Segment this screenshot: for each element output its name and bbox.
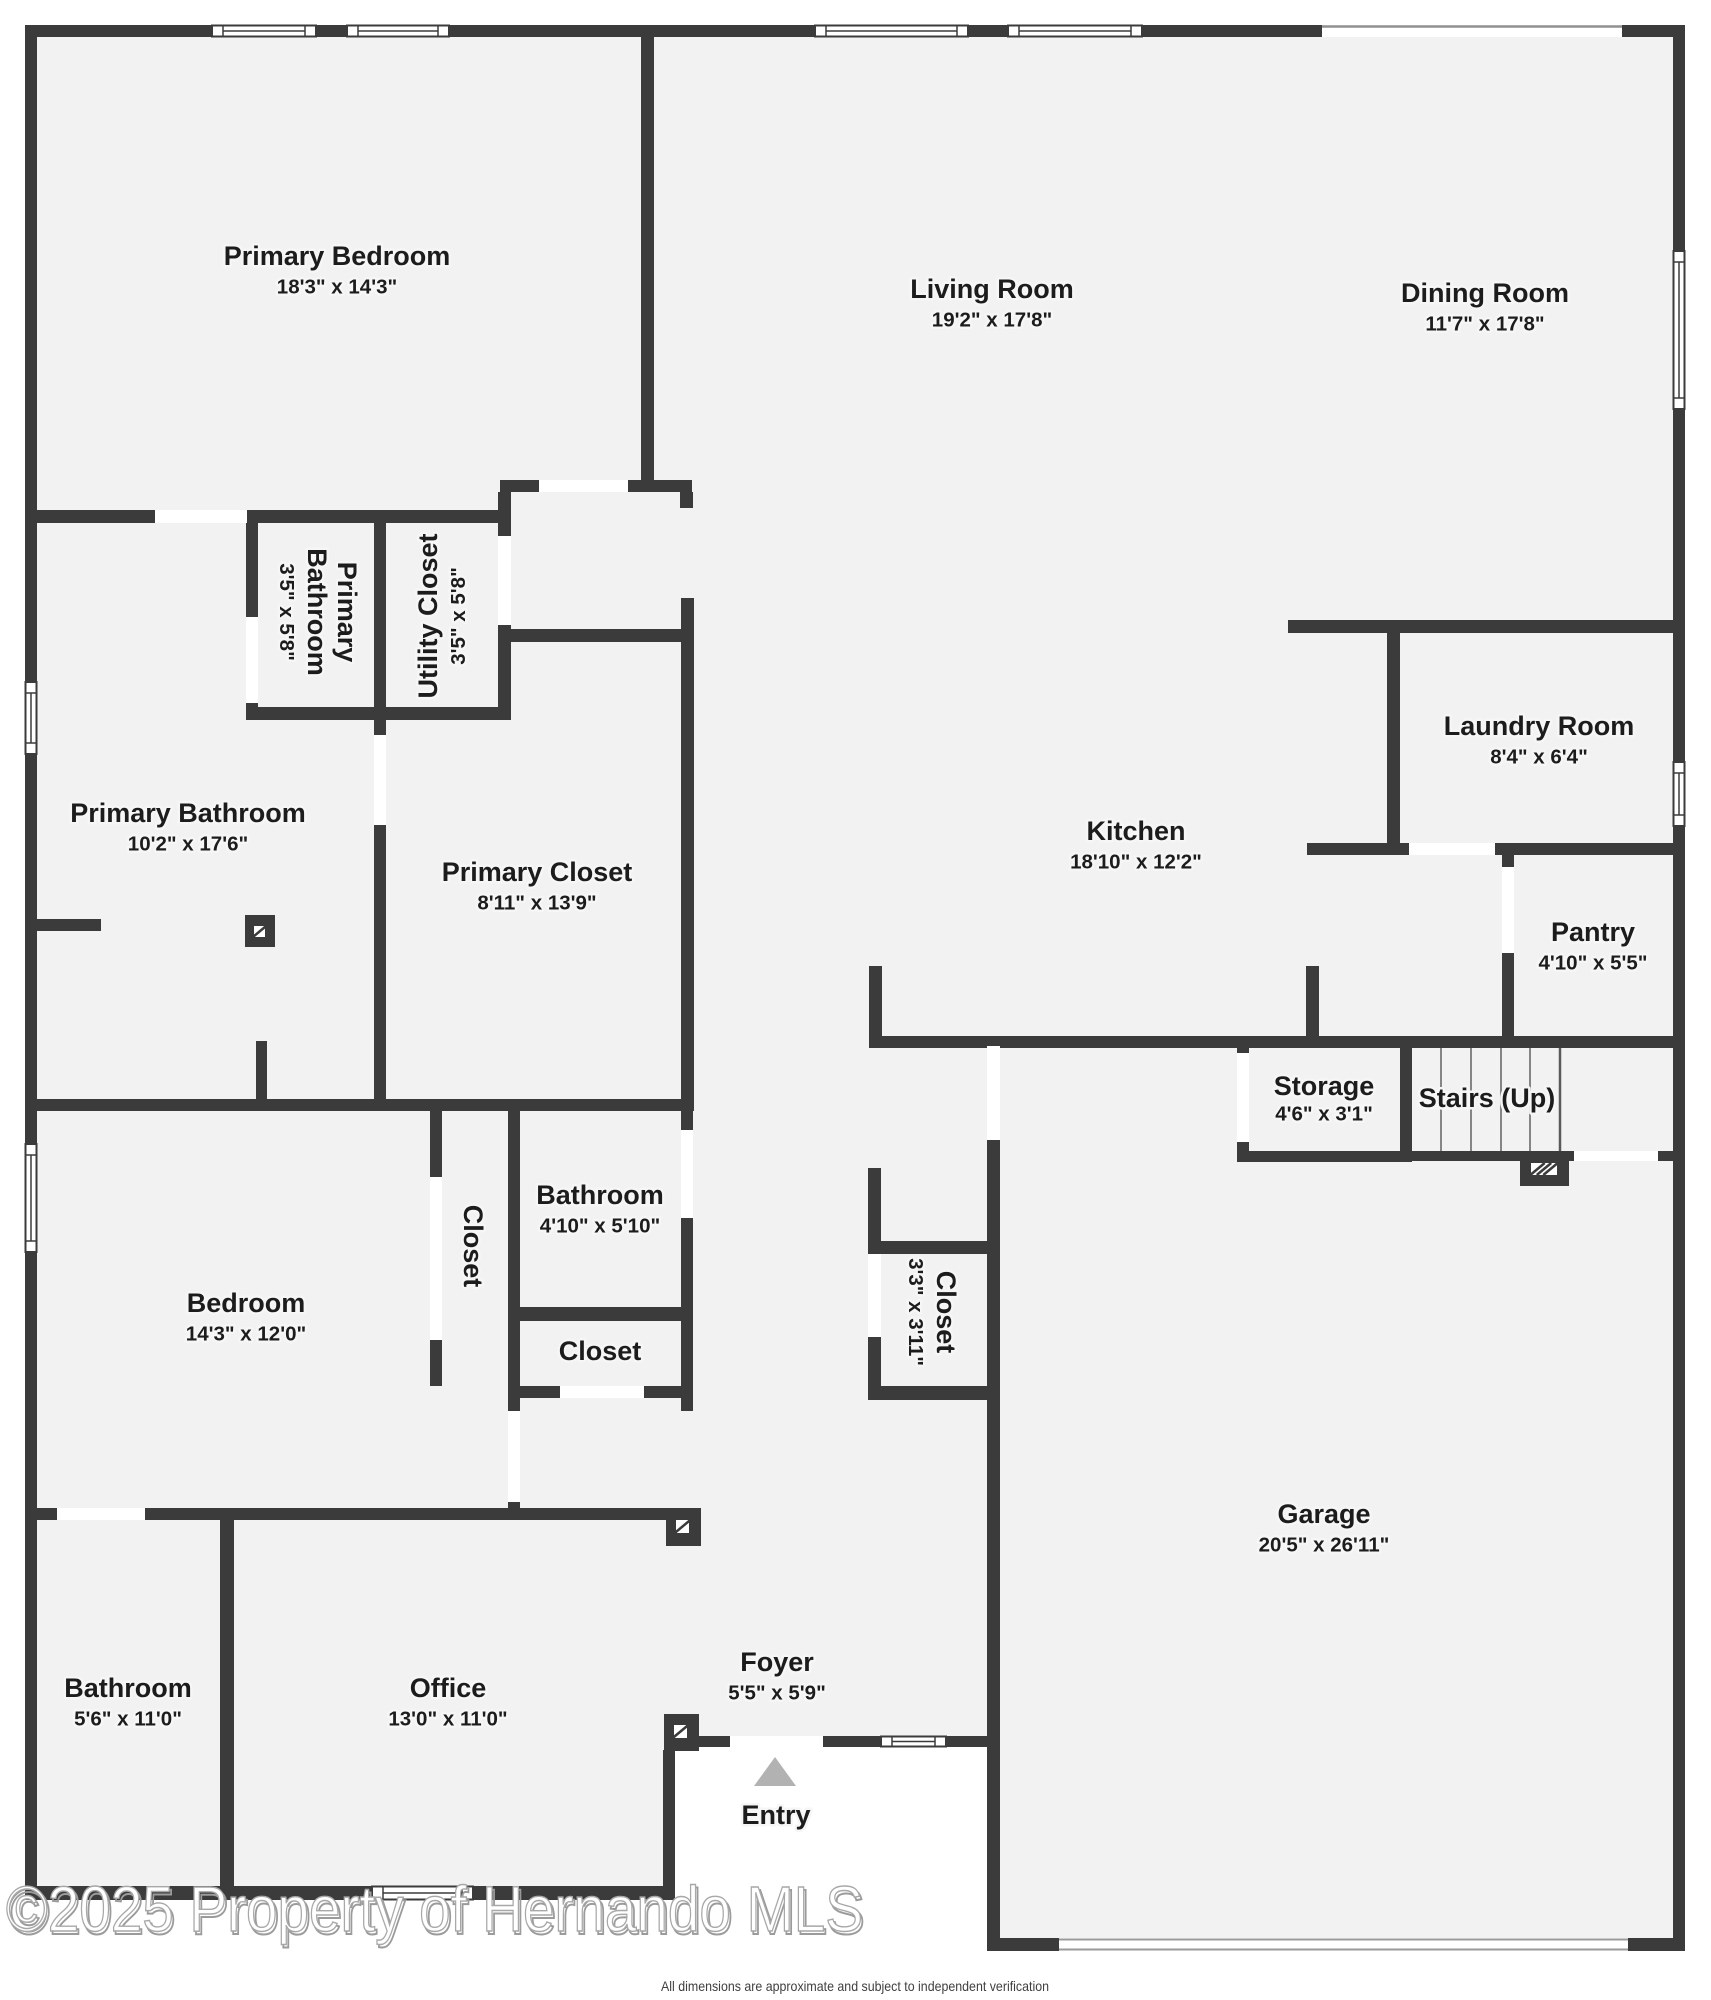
svg-text:8'4" x 6'4": 8'4" x 6'4" — [1490, 746, 1588, 769]
svg-text:Laundry Room: Laundry Room — [1444, 711, 1635, 741]
svg-text:Storage: Storage — [1274, 1071, 1375, 1101]
svg-text:10'2" x 17'6": 10'2" x 17'6" — [128, 833, 248, 856]
svg-text:Foyer: Foyer — [740, 1647, 814, 1677]
svg-text:3'5" x 5'8": 3'5" x 5'8" — [447, 567, 470, 665]
svg-text:20'5" x 26'11": 20'5" x 26'11" — [1259, 1534, 1390, 1557]
svg-text:Living Room: Living Room — [910, 274, 1074, 304]
svg-text:Utility Closet: Utility Closet — [413, 533, 443, 698]
svg-text:Stairs (Up): Stairs (Up) — [1419, 1083, 1556, 1113]
svg-text:3'3" x 3'11": 3'3" x 3'11" — [904, 1258, 927, 1366]
svg-text:5'5" x 5'9": 5'5" x 5'9" — [728, 1682, 826, 1705]
svg-text:Pantry: Pantry — [1551, 917, 1635, 947]
svg-text:Bedroom: Bedroom — [187, 1288, 306, 1318]
svg-text:3'5" x 5'8": 3'5" x 5'8" — [275, 563, 298, 661]
svg-text:13'0" x 11'0": 13'0" x 11'0" — [388, 1708, 507, 1731]
svg-text:Office: Office — [410, 1673, 487, 1703]
svg-text:All dimensions are approximate: All dimensions are approximate and subje… — [661, 1978, 1049, 1994]
svg-text:Entry: Entry — [741, 1800, 810, 1830]
svg-text:Primary Bedroom: Primary Bedroom — [224, 241, 451, 271]
svg-text:19'2" x 17'8": 19'2" x 17'8" — [932, 309, 1052, 332]
svg-text:4'10" x 5'5": 4'10" x 5'5" — [1539, 952, 1648, 975]
svg-text:Dining Room: Dining Room — [1401, 278, 1569, 308]
svg-text:Closet: Closet — [931, 1271, 961, 1354]
svg-text:18'3" x 14'3": 18'3" x 14'3" — [277, 276, 397, 299]
svg-text:4'6" x 3'1": 4'6" x 3'1" — [1275, 1103, 1373, 1126]
svg-text:8'11" x 13'9": 8'11" x 13'9" — [477, 892, 596, 915]
svg-text:Primary: Primary — [332, 562, 362, 663]
svg-text:Closet: Closet — [559, 1336, 642, 1366]
svg-text:Primary Closet: Primary Closet — [442, 857, 633, 887]
svg-text:11'7" x 17'8": 11'7" x 17'8" — [1425, 313, 1544, 336]
svg-text:18'10" x 12'2": 18'10" x 12'2" — [1070, 851, 1202, 874]
svg-text:©2025 Property of Hernando MLS: ©2025 Property of Hernando MLS — [6, 1873, 863, 1945]
svg-text:Bathroom: Bathroom — [64, 1673, 192, 1703]
svg-text:Kitchen: Kitchen — [1086, 816, 1185, 846]
svg-text:4'10" x 5'10": 4'10" x 5'10" — [540, 1215, 660, 1238]
svg-text:Bathroom: Bathroom — [302, 548, 332, 676]
svg-text:5'6" x 11'0": 5'6" x 11'0" — [74, 1708, 182, 1731]
svg-text:Primary Bathroom: Primary Bathroom — [70, 798, 306, 828]
svg-text:Bathroom: Bathroom — [536, 1180, 664, 1210]
svg-text:Garage: Garage — [1277, 1499, 1370, 1529]
svg-text:14'3" x 12'0": 14'3" x 12'0" — [186, 1323, 306, 1346]
svg-text:Closet: Closet — [458, 1205, 488, 1288]
